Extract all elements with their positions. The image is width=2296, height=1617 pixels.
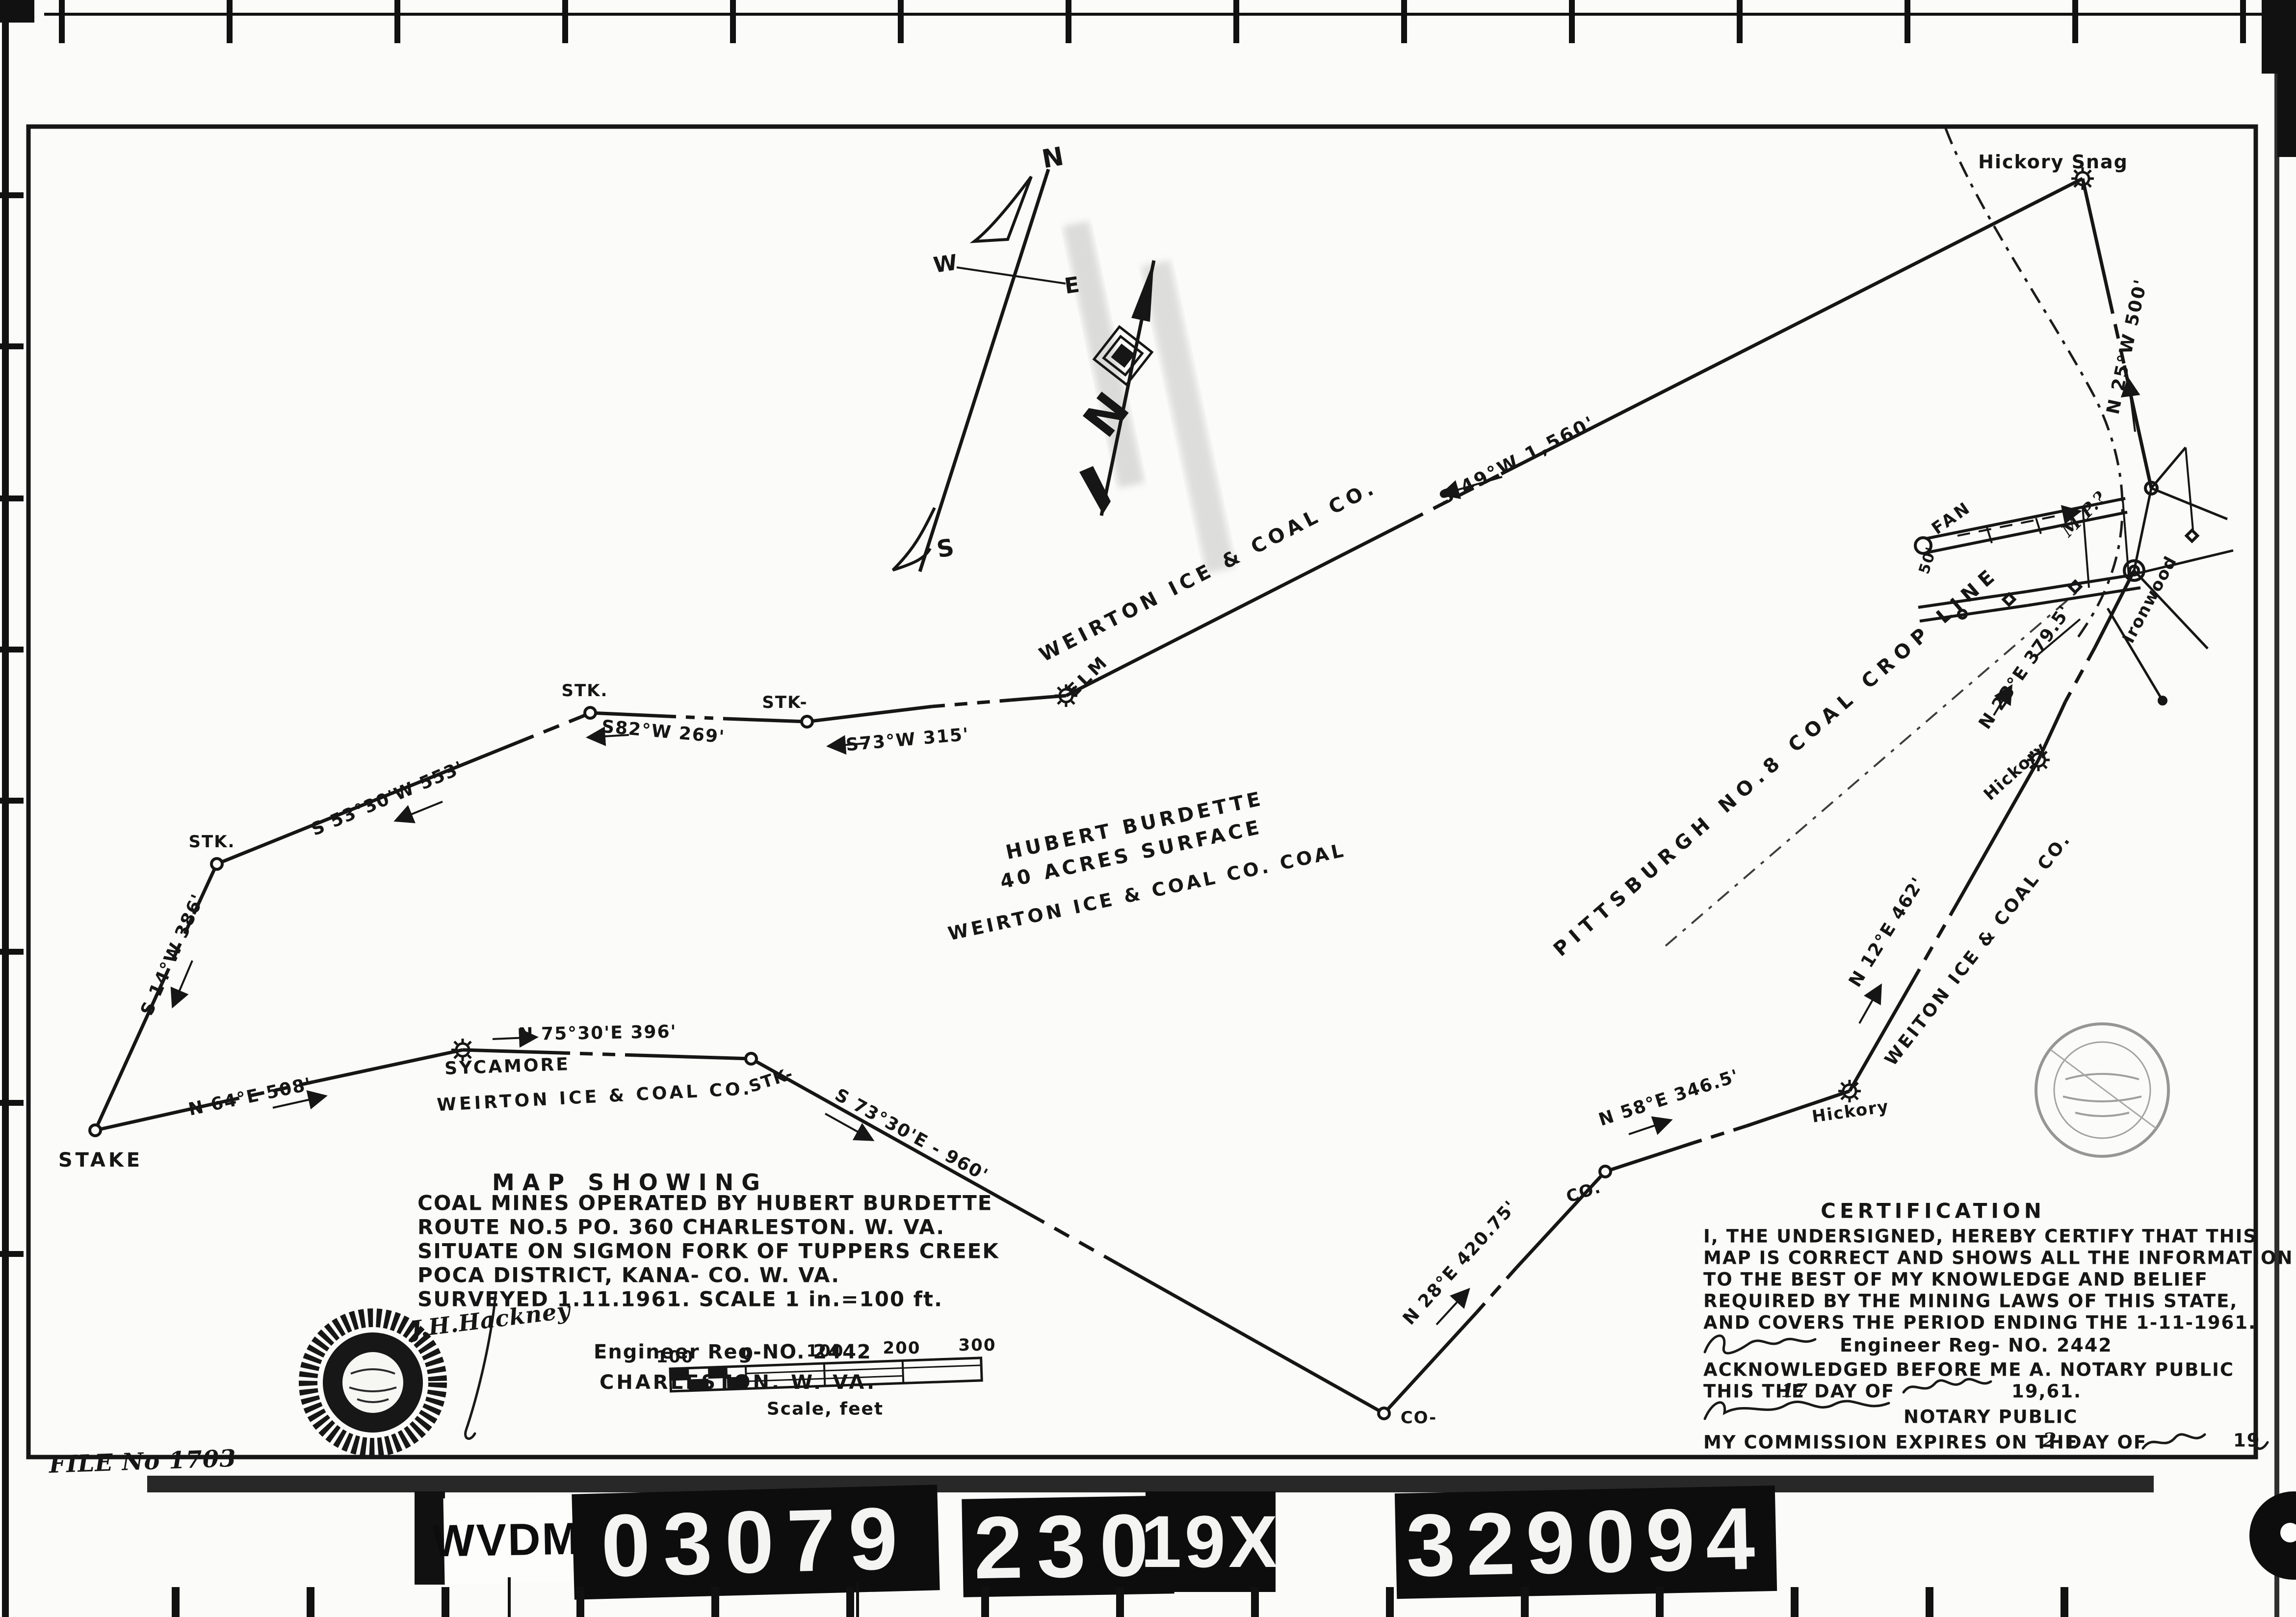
- title-line-2: ROUTE NO.5 PO. 360 CHARLESTON. W. VA.: [417, 1215, 945, 1239]
- film-frame-text: 230: [973, 1494, 1163, 1599]
- point-label-stk-elmline: STK-: [762, 693, 808, 712]
- film-index-plate: 19X: [1146, 1491, 1276, 1592]
- title-line-1: COAL MINES OPERATED BY HUBERT BURDETTE: [417, 1191, 992, 1215]
- film-document-plate: 329094: [1395, 1486, 1777, 1599]
- point-label-stake: STAKE: [58, 1149, 143, 1172]
- film-reel-text: 03079: [600, 1487, 912, 1597]
- mine-workings: [1915, 447, 2233, 704]
- certification-body-2: MAP IS CORRECT AND SHOWS ALL THE INFORMA…: [1703, 1248, 2293, 1269]
- commission-day: 2: [2043, 1429, 2057, 1452]
- scale-tick-100l: 100: [656, 1347, 694, 1367]
- certification-acknowledged: ACKNOWLEDGED BEFORE ME A. NOTARY PUBLIC: [1703, 1359, 2234, 1381]
- compass-east-label: E: [1063, 272, 1082, 299]
- film-reel-plate: 03079: [572, 1485, 939, 1599]
- certification-year: 19,61.: [2011, 1381, 2082, 1402]
- scale-caption: Scale, feet: [767, 1399, 884, 1419]
- certification-body-5: AND COVERS THE PERIOD ENDING THE 1-11-19…: [1703, 1312, 2256, 1333]
- scale-tick-200: 200: [883, 1338, 921, 1358]
- certification-body-3: TO THE BEST OF MY KNOWLEDGE AND BELIEF: [1703, 1269, 2208, 1290]
- commission-day-of: DAY OF: [2066, 1432, 2147, 1453]
- point-label-hickory-snag: Hickory Snag: [1978, 151, 2128, 173]
- film-reel-hub: [2280, 1523, 2296, 1542]
- certification-day: 17: [1781, 1380, 1808, 1402]
- point-label-stk-mid: STK.: [562, 681, 608, 701]
- scanned-mine-map-sheet: WVDM 03079 230 19X 329094 N: [0, 0, 2296, 1617]
- certification-body-1: I, THE UNDERSIGNED, HEREBY CERTIFY THAT …: [1703, 1226, 2257, 1247]
- commission-year: 19: [2233, 1430, 2261, 1451]
- title-city-line: CHARLESTON. W. VA.: [600, 1371, 877, 1394]
- point-label-stk-upper: STK.: [189, 832, 235, 852]
- film-agency-plate: WVDM: [443, 1496, 570, 1584]
- scale-tick-300: 300: [959, 1335, 996, 1355]
- certification-heading: CERTIFICATION: [1821, 1199, 2045, 1223]
- scale-tick-0: 0: [741, 1344, 754, 1364]
- compass-line: [893, 169, 1066, 572]
- title-line-3: SITUATE ON SIGMON FORK OF TUPPERS CREEK: [417, 1239, 999, 1263]
- film-document-text: 329094: [1405, 1487, 1767, 1596]
- coal-crop-line: [1666, 129, 2122, 946]
- scale-tick-100: 100: [807, 1341, 844, 1361]
- bearing-label-n75-30e: N 75°30'E 396': [518, 1022, 677, 1045]
- point-label-co-2: CO-: [1401, 1408, 1437, 1428]
- certification-engineer-line: Engineer Reg- NO. 2442: [1840, 1334, 2113, 1356]
- film-index-text: 19X: [1141, 1499, 1280, 1584]
- film-agency-text: WVDM: [432, 1513, 581, 1567]
- certification-body-4: REQUIRED BY THE MINING LAWS OF THIS STAT…: [1703, 1291, 2238, 1312]
- title-line-4: POCA DISTRICT, KANA- CO. W. VA.: [417, 1263, 840, 1287]
- film-right-edge: [2274, 0, 2279, 1617]
- commission-pre: MY COMMISSION EXPIRES ON THE: [1703, 1432, 2078, 1453]
- notary-stamp: [2036, 1024, 2168, 1156]
- certification-day-of: DAY OF: [1814, 1381, 1895, 1402]
- notary-public-label: NOTARY PUBLIC: [1904, 1407, 2078, 1428]
- compass-west-label: W: [932, 250, 960, 278]
